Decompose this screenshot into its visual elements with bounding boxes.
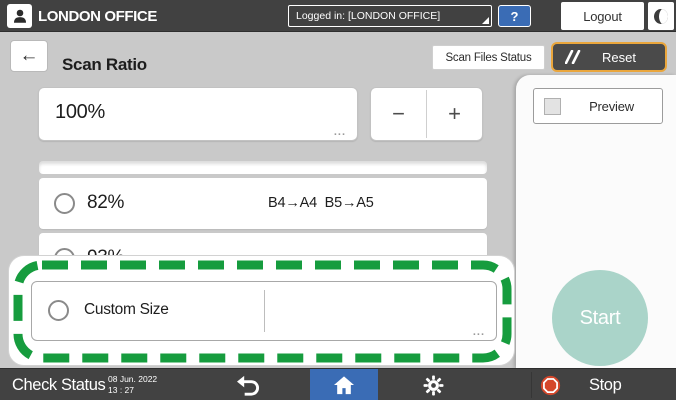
undo-back-button[interactable] [228,369,268,400]
login-status-label: Logged in: [LONDON OFFICE] [296,10,440,22]
check-status-button[interactable]: Check Status [12,369,105,400]
crescent-moon-icon [654,9,668,24]
logout-button[interactable]: Logout [561,2,644,30]
reset-button[interactable]: Reset [551,42,667,72]
settings-button[interactable] [412,369,454,400]
help-button[interactable]: ? [498,5,531,27]
list-item-partial[interactable] [39,161,487,174]
home-icon [333,375,355,395]
date-time-display: 08 Jun. 2022 13 : 27 [108,374,157,395]
user-name-label: LONDON OFFICE [38,8,157,25]
dropdown-corner-icon [482,17,489,24]
action-panel: Preview Start [516,75,676,368]
radio-icon [54,193,75,214]
start-button[interactable]: Start [552,270,648,366]
ratio-stepper: − + [370,87,483,141]
checkbox-icon [544,98,561,115]
login-status-dropdown[interactable]: Logged in: [LONDON OFFICE] [288,5,492,27]
ratio-option-82[interactable]: 82% B4→A4 B5→A5 [39,178,487,229]
time-label: 13 : 27 [108,385,157,396]
user-icon [7,4,32,28]
stop-octagon-icon [540,375,561,396]
top-status-bar: LONDON OFFICE Logged in: [LONDON OFFICE]… [0,0,676,32]
scanner-touch-screen: LONDON OFFICE Logged in: [LONDON OFFICE]… [0,0,676,400]
bottom-system-bar: Check Status 08 Jun. 2022 13 : 27 [0,368,676,400]
stop-label: Stop [589,376,621,395]
bottom-bar-divider [531,372,532,398]
ellipsis-indicator: ... [473,326,485,338]
back-button[interactable]: ← [10,40,48,72]
custom-size-field-divider [264,290,265,332]
scan-files-status-button[interactable]: Scan Files Status [432,45,545,70]
reset-label: Reset [583,50,665,65]
energy-saver-button[interactable] [648,2,674,30]
decrease-ratio-button[interactable]: − [371,88,426,140]
preview-label: Preview [561,99,662,114]
ratio-option-detail: B4→A4 B5→A5 [268,195,374,211]
ratio-option-custom-size[interactable]: Custom Size ... [31,281,497,341]
increase-ratio-button[interactable]: + [427,88,482,140]
custom-size-highlight: Custom Size ... [8,255,515,366]
curved-back-arrow-icon [235,374,262,397]
scan-ratio-value: 100% [55,101,105,124]
scan-ratio-value-field[interactable]: 100% ... [38,87,358,141]
ratio-option-label: Custom Size [84,301,169,319]
radio-icon [48,300,69,321]
date-label: 08 Jun. 2022 [108,374,157,385]
double-slash-icon [565,50,583,64]
gear-icon [423,375,444,396]
preview-toggle-button[interactable]: Preview [533,88,663,124]
stop-button[interactable]: Stop [536,369,666,400]
logged-in-user-chip[interactable]: LONDON OFFICE [7,4,157,28]
home-button[interactable] [310,369,378,400]
ratio-option-label: 82% [87,192,124,214]
ellipsis-indicator: ... [334,126,346,138]
page-title: Scan Ratio [62,55,147,75]
